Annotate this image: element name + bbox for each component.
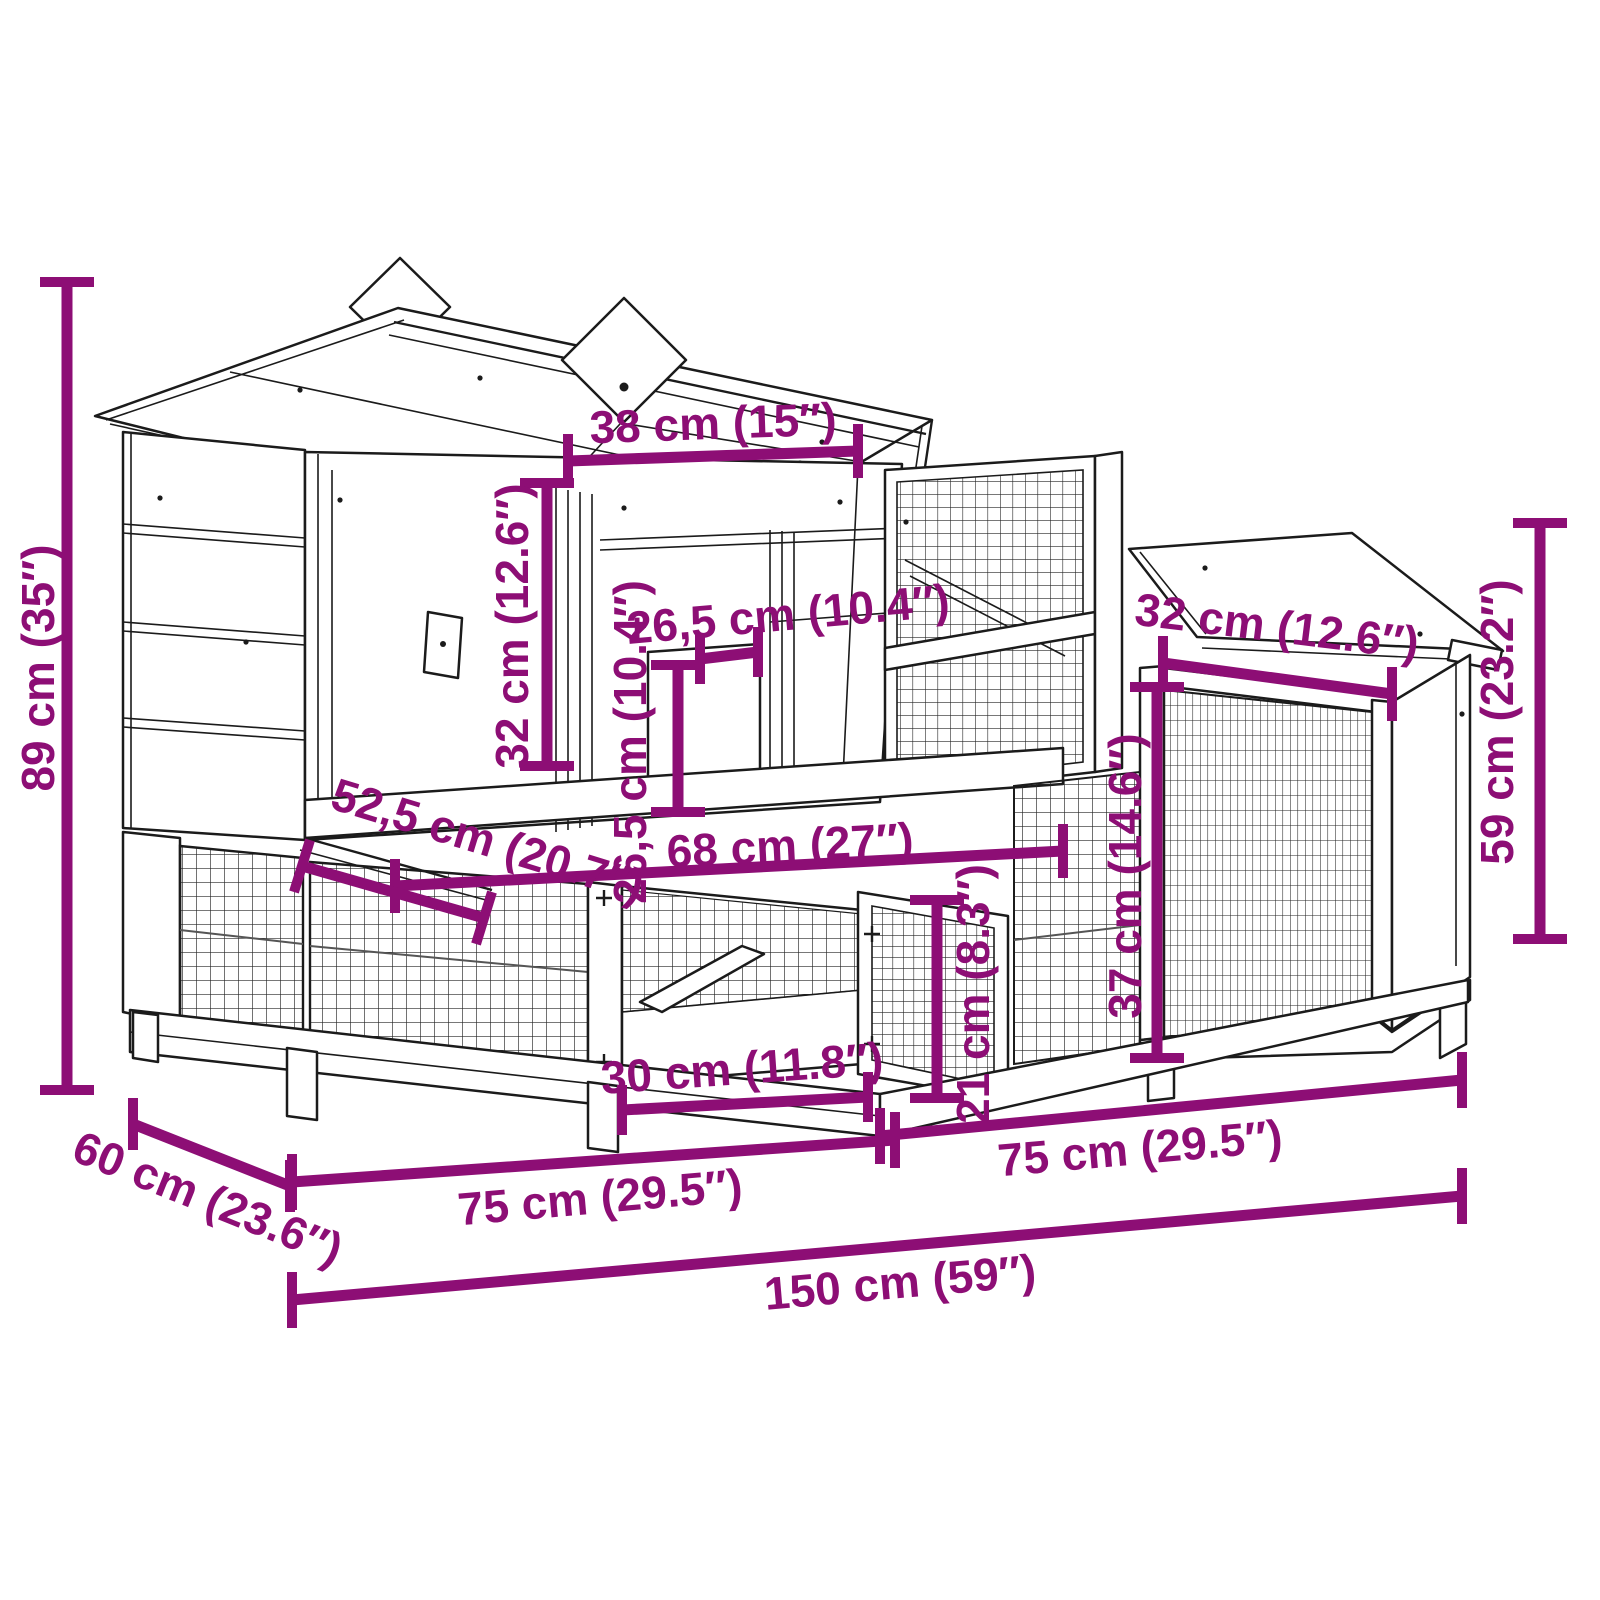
hutch-dimension-diagram: 89 cm (35″)38 cm (15″)32 cm (12.6″)26,5 …	[0, 0, 1600, 1600]
dimension-line	[700, 652, 758, 659]
dimension-label: 37 cm (14.6″)	[1099, 733, 1151, 1018]
annex-right-post	[1372, 700, 1392, 1030]
dimension-label: 59 cm (23.2″)	[1471, 579, 1523, 864]
annex-side-wall	[1392, 655, 1470, 1030]
base-foot-left	[287, 1048, 317, 1120]
base-foot-back-left	[133, 1012, 158, 1062]
dimension-label: 89 cm (35″)	[12, 544, 64, 791]
middle-post	[1095, 452, 1122, 772]
run-corner-post	[123, 832, 180, 1024]
dimension-label: 32 cm (12.6″)	[486, 483, 538, 768]
dimension-label: 21 cm (8.3″)	[947, 864, 999, 1124]
diagram-page: 89 cm (35″)38 cm (15″)32 cm (12.6″)26,5 …	[0, 0, 1600, 1600]
annex-front-mesh	[1164, 690, 1372, 1042]
house-side-wall	[123, 432, 305, 840]
dimension-label: 38 cm (15″)	[589, 393, 838, 454]
